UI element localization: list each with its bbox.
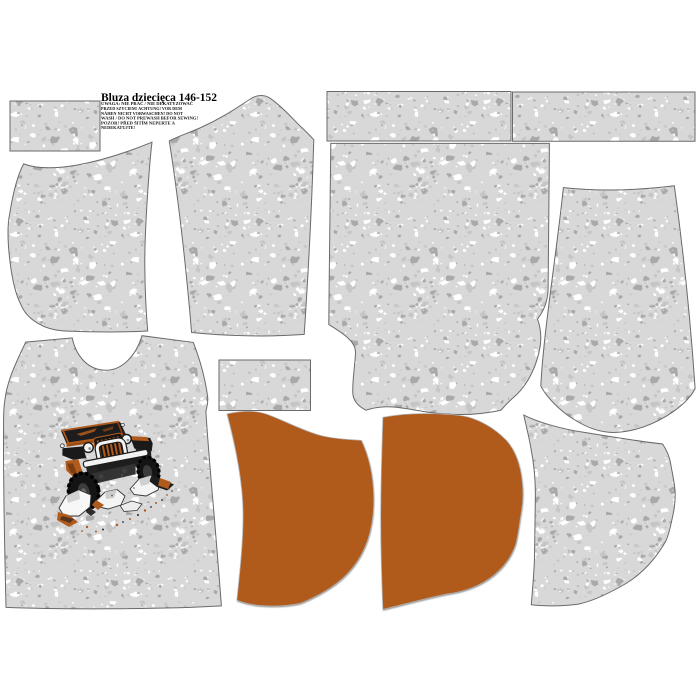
svg-text:NEDEKATUJTE!: NEDEKATUJTE!: [101, 125, 135, 130]
